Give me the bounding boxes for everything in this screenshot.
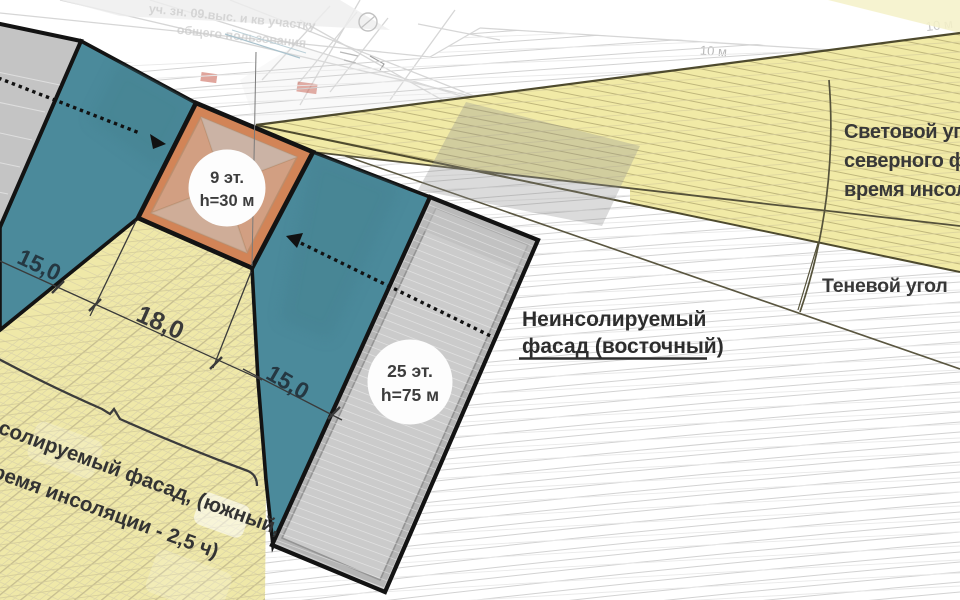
svg-text:Неинсолируемый: Неинсолируемый bbox=[522, 308, 706, 331]
svg-text:h=75 м: h=75 м bbox=[381, 385, 439, 405]
svg-text:Теневой угол: Теневой угол bbox=[822, 275, 948, 297]
svg-text:Световой угол: Световой угол bbox=[844, 121, 960, 143]
svg-text:время инсоляции: время инсоляции bbox=[844, 179, 960, 201]
svg-text:25 эт.: 25 эт. bbox=[387, 361, 433, 381]
svg-text:северного фасада: северного фасада bbox=[844, 150, 960, 172]
svg-text:фасад (восточный): фасад (восточный) bbox=[522, 335, 724, 358]
svg-text:9 эт.: 9 эт. bbox=[210, 169, 244, 187]
svg-text:h=30 м: h=30 м bbox=[200, 192, 255, 210]
